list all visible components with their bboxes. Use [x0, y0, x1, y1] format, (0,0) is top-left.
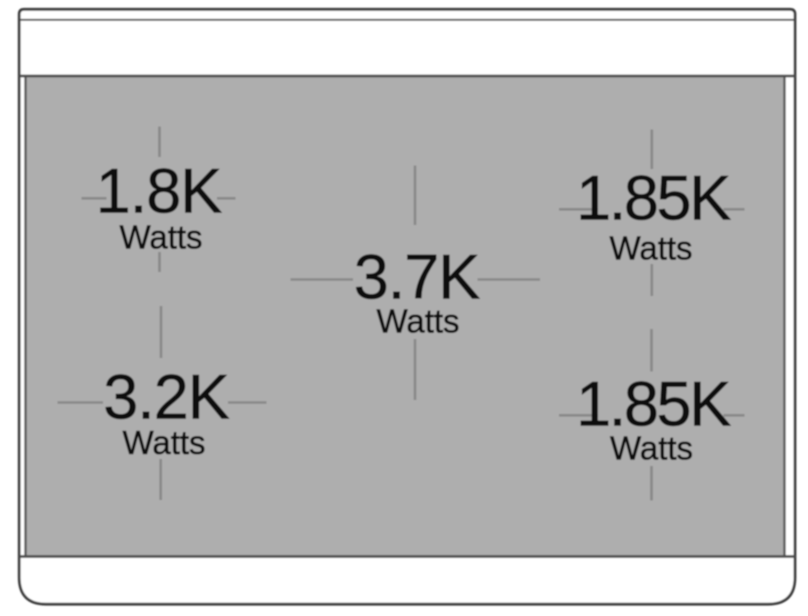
svg-text:Watts: Watts: [609, 230, 692, 267]
svg-text:Watts: Watts: [122, 424, 205, 461]
svg-text:1.8K: 1.8K: [96, 157, 223, 227]
svg-text:Watts: Watts: [119, 219, 202, 256]
svg-text:Watts: Watts: [610, 430, 693, 467]
svg-text:1.85K: 1.85K: [576, 164, 731, 234]
svg-text:3.2K: 3.2K: [103, 363, 230, 433]
svg-text:Watts: Watts: [376, 303, 459, 340]
